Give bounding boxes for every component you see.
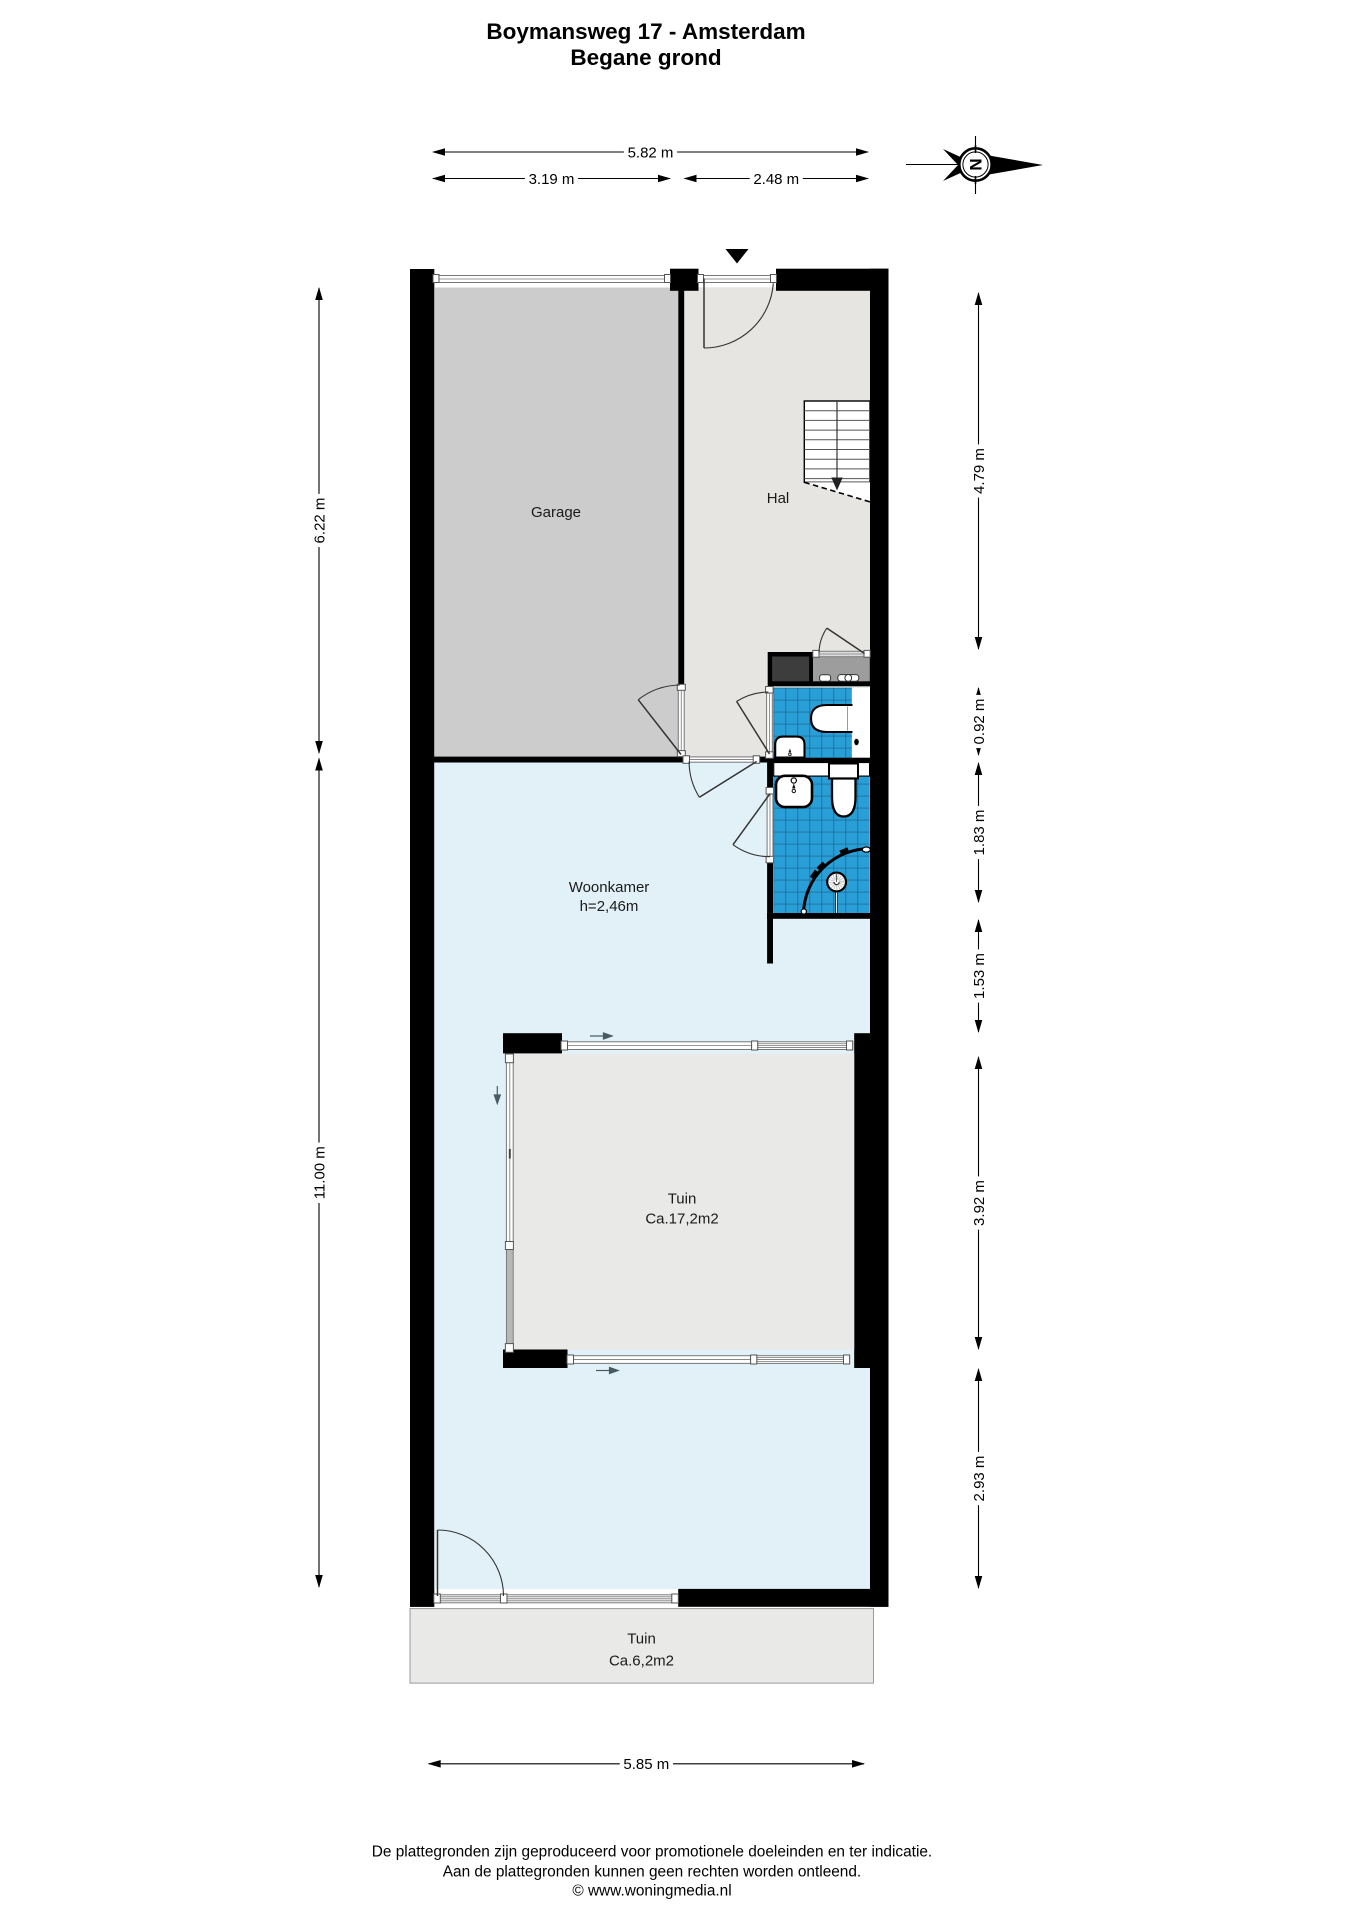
svg-text:5.85 m: 5.85 m xyxy=(623,1756,669,1773)
svg-text:Tuin: Tuin xyxy=(627,1631,656,1648)
svg-text:© www.woningmedia.nl: © www.woningmedia.nl xyxy=(572,1883,731,1900)
svg-text:h=2,46m: h=2,46m xyxy=(580,898,639,915)
svg-text:6.22 m: 6.22 m xyxy=(311,498,328,544)
svg-text:4.79 m: 4.79 m xyxy=(971,448,988,494)
svg-text:3.92 m: 3.92 m xyxy=(971,1180,988,1226)
svg-text:2.93 m: 2.93 m xyxy=(971,1456,988,1502)
svg-text:De plattegronden zijn geproduc: De plattegronden zijn geproduceerd voor … xyxy=(372,1844,932,1861)
svg-text:1.53 m: 1.53 m xyxy=(971,953,988,999)
svg-text:N: N xyxy=(966,158,985,170)
svg-text:Ca.6,2m2: Ca.6,2m2 xyxy=(609,1653,674,1670)
svg-text:1.83 m: 1.83 m xyxy=(971,810,988,856)
svg-text:Hal: Hal xyxy=(767,490,790,507)
svg-text:2.48 m: 2.48 m xyxy=(753,171,799,188)
svg-text:Tuin: Tuin xyxy=(668,1191,697,1208)
svg-text:Garage: Garage xyxy=(531,504,581,521)
svg-text:Ca.17,2m2: Ca.17,2m2 xyxy=(645,1211,718,1228)
svg-text:11.00 m: 11.00 m xyxy=(311,1146,328,1199)
svg-text:0.92 m: 0.92 m xyxy=(971,699,988,745)
svg-text:5.82 m: 5.82 m xyxy=(628,144,674,161)
svg-text:Aan de plattegronden kunnen ge: Aan de plattegronden kunnen geen rechten… xyxy=(443,1864,861,1881)
svg-text:3.19 m: 3.19 m xyxy=(529,171,575,188)
svg-text:Begane grond: Begane grond xyxy=(570,45,721,70)
svg-text:Woonkamer: Woonkamer xyxy=(569,879,650,896)
svg-text:Boymansweg 17 - Amsterdam: Boymansweg 17 - Amsterdam xyxy=(486,19,805,44)
